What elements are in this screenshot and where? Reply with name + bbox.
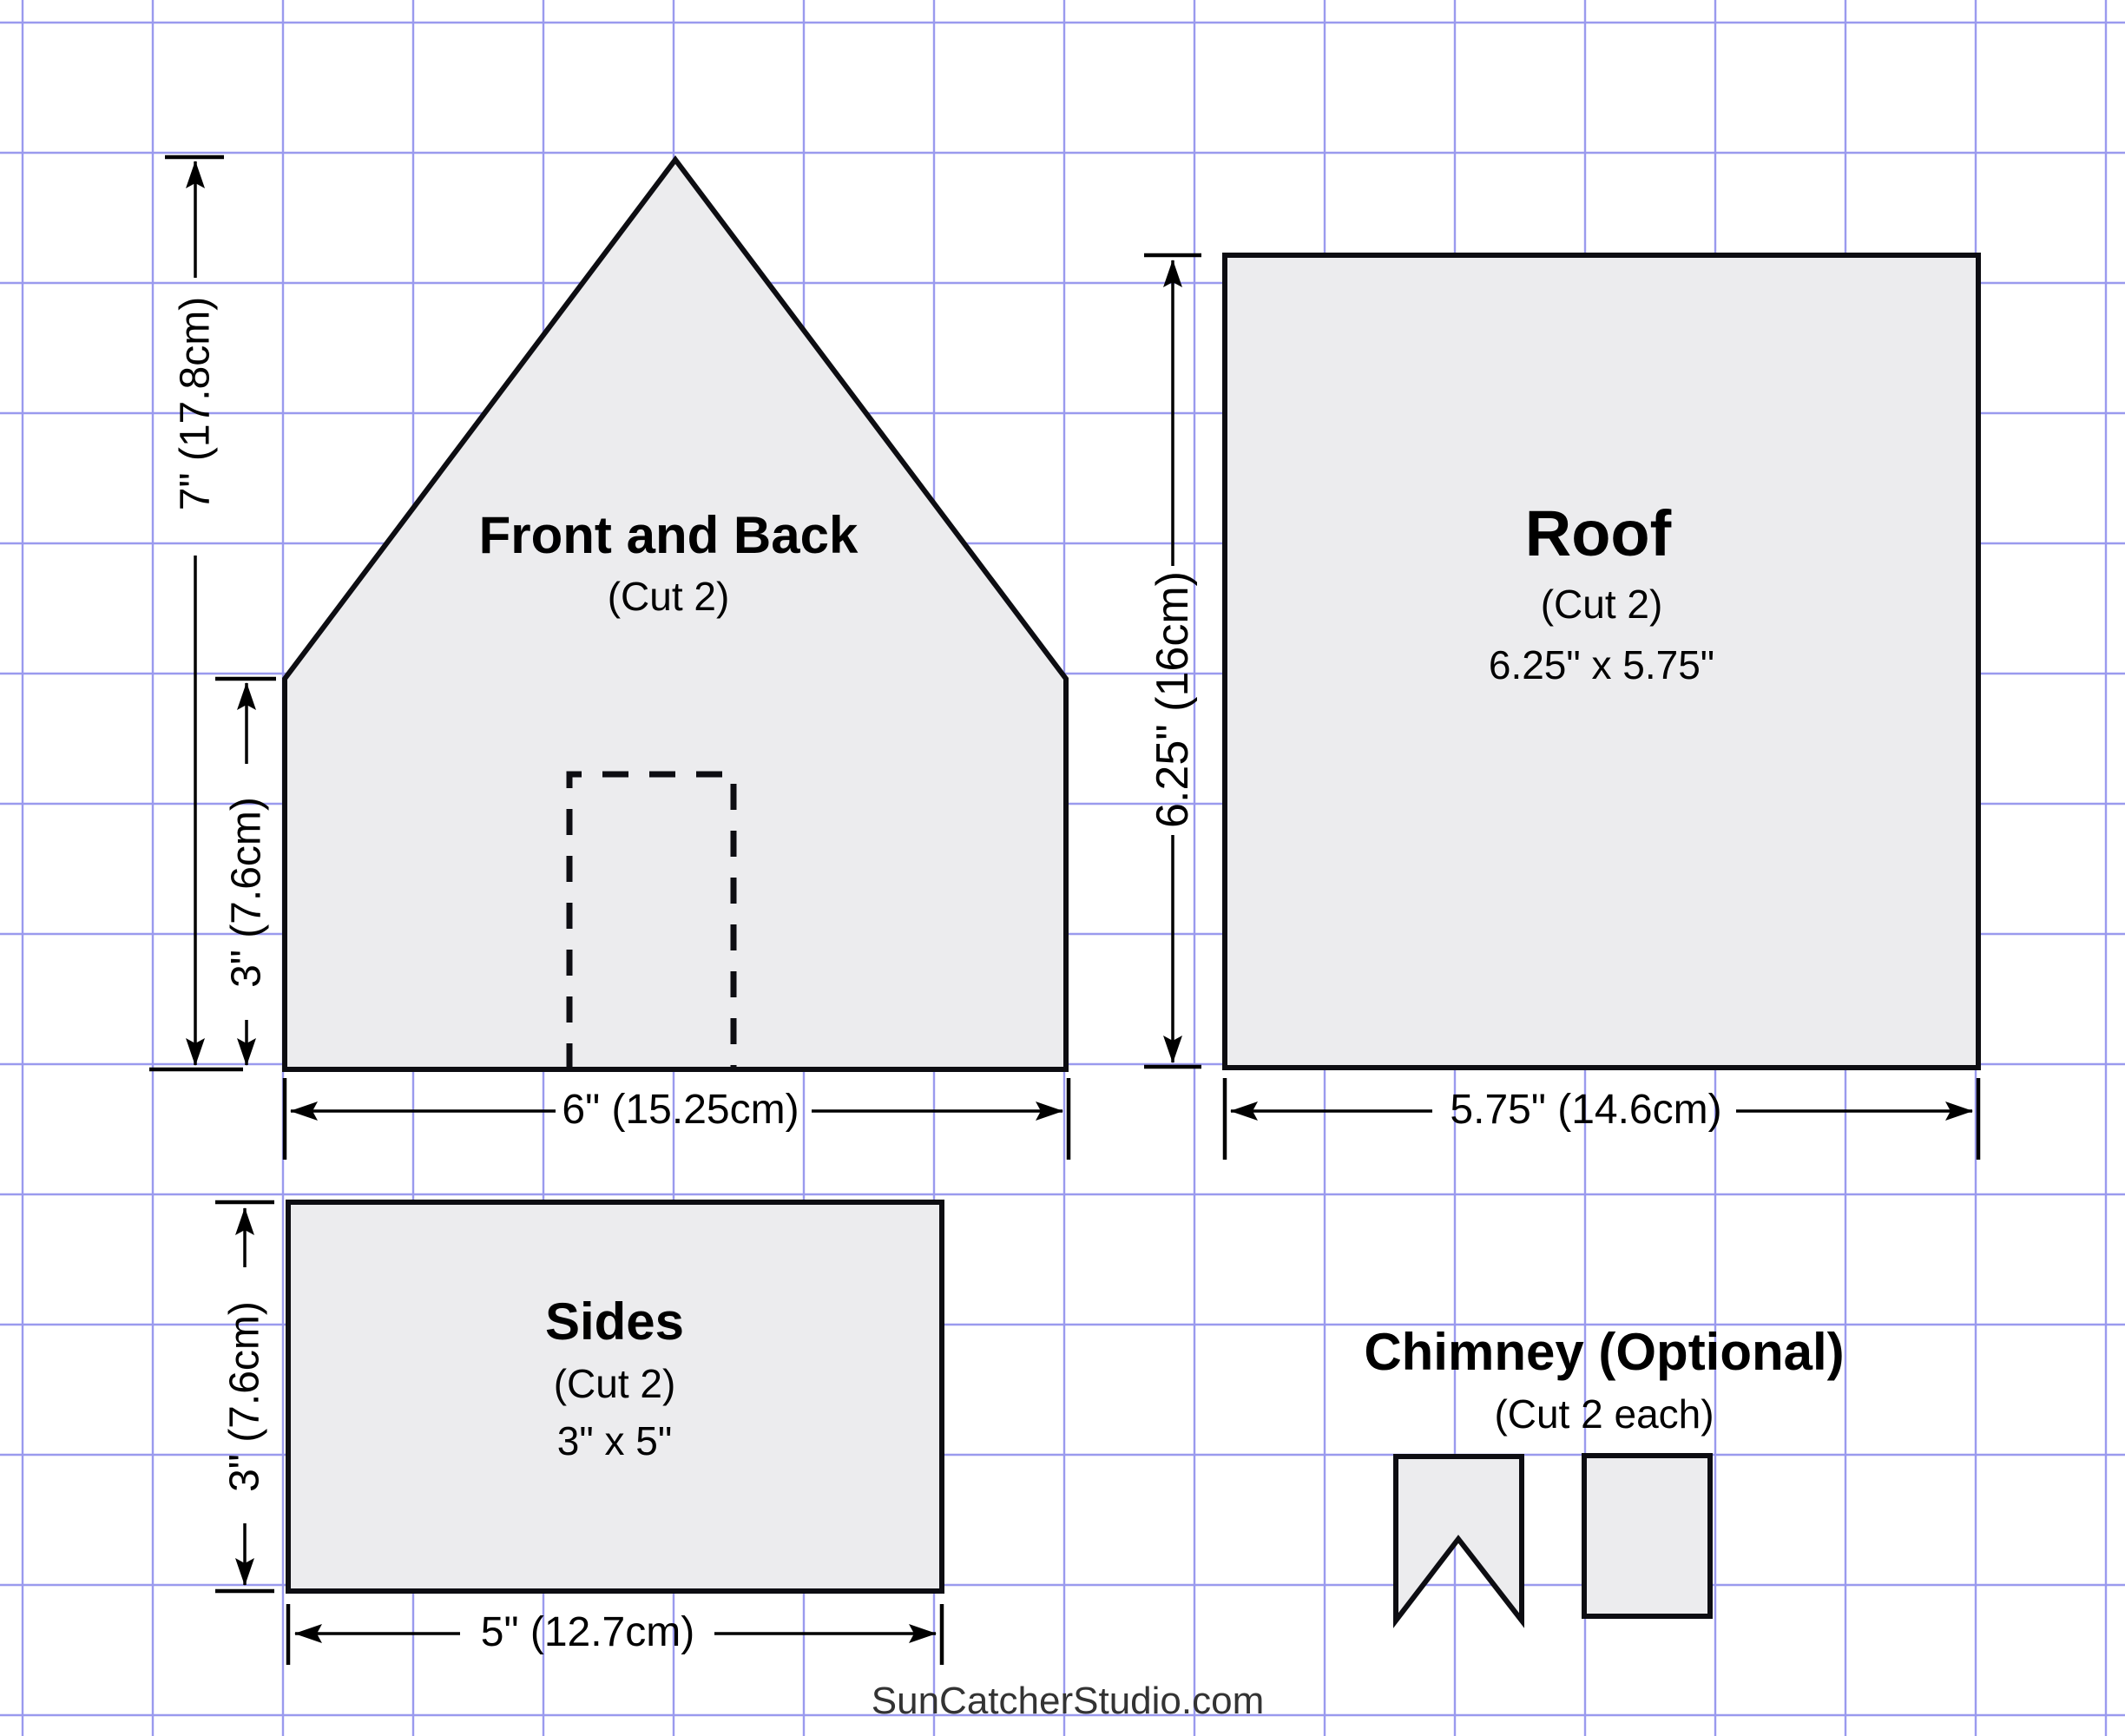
- chimney-rect-shape: [1584, 1456, 1710, 1616]
- dim-sides-width-label: 5" (12.7cm): [481, 1609, 694, 1655]
- roof-title: Roof: [1525, 497, 1672, 569]
- dim-roof-height-label: 6.25" (16cm): [1148, 571, 1198, 828]
- sides-subtitle: (Cut 2): [554, 1361, 676, 1406]
- dim-front-total-label: 7" (17.8cm): [173, 297, 219, 510]
- pieces-layer: [285, 160, 1978, 1621]
- front-back-subtitle: (Cut 2): [608, 574, 730, 619]
- pattern-page: 7" (17.8cm)3" (7.6cm)6" (15.25cm)6.25" (…: [0, 0, 2125, 1736]
- pattern-canvas: 7" (17.8cm)3" (7.6cm)6" (15.25cm)6.25" (…: [0, 0, 2125, 1736]
- front-back-title: Front and Back: [479, 506, 859, 564]
- sides-size-label: 3" x 5": [557, 1418, 672, 1463]
- chimney-title: Chimney (Optional): [1364, 1323, 1844, 1381]
- watermark: SunCatcherStudio.com: [872, 1680, 1264, 1722]
- roof-size-label: 6.25" x 5.75": [1489, 642, 1714, 687]
- sides-title: Sides: [545, 1292, 684, 1351]
- dim-sides-height-label: 3" (7.6cm): [222, 1301, 268, 1492]
- chimney-notched-shape: [1396, 1457, 1522, 1621]
- dim-front-wall-label: 3" (7.6cm): [224, 797, 270, 988]
- dim-front-width-label: 6" (15.25cm): [562, 1087, 799, 1133]
- dim-roof-width-label: 5.75" (14.6cm): [1450, 1087, 1721, 1133]
- chimney-subtitle: (Cut 2 each): [1494, 1391, 1714, 1437]
- roof-subtitle: (Cut 2): [1541, 582, 1663, 627]
